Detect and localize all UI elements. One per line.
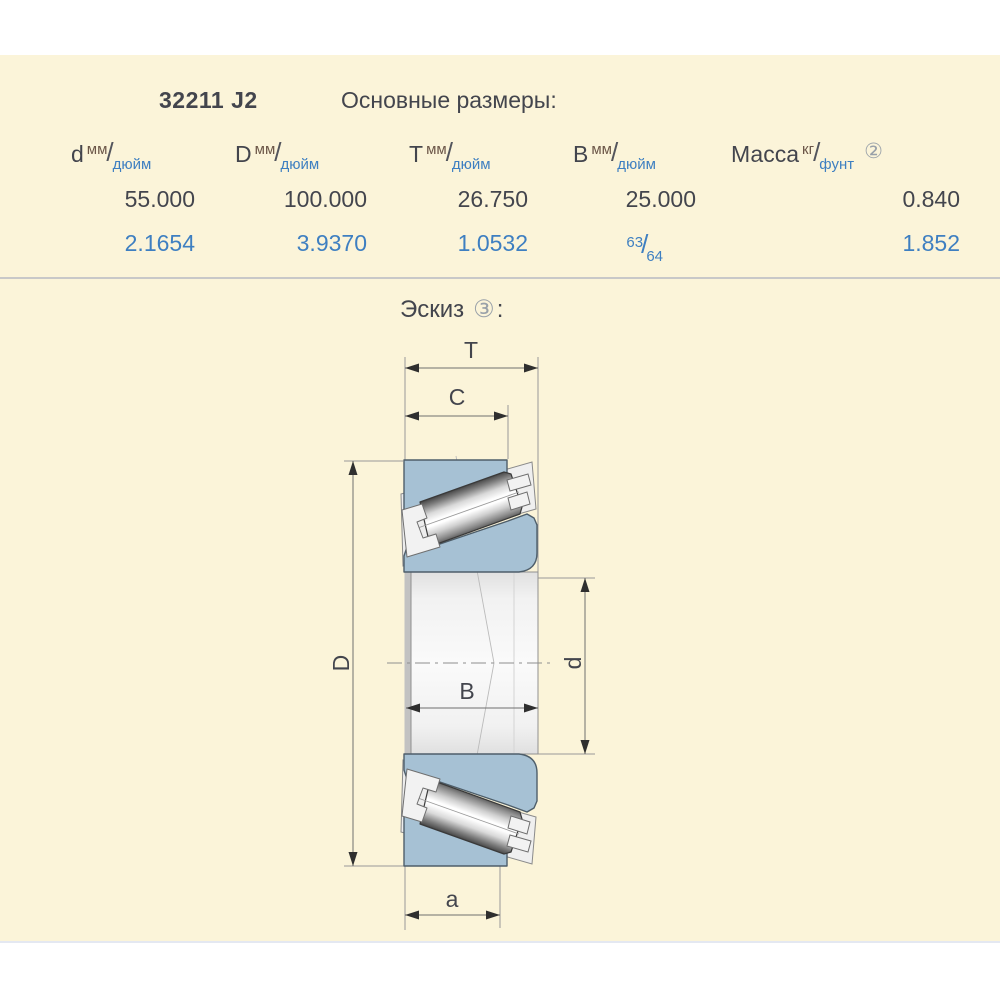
dim-label-D: D [328, 655, 354, 672]
bearing-lower-half [401, 754, 537, 866]
dim-label-C: C [449, 384, 466, 410]
dim-label-T: T [464, 337, 478, 363]
dim-label-a: a [446, 886, 459, 912]
bearing-upper-half [401, 460, 537, 572]
dimension-T [405, 364, 538, 373]
dimension-C [405, 412, 508, 421]
dim-label-B: B [459, 678, 474, 704]
dim-label-d: d [560, 657, 586, 670]
bearing-cross-section-sketch: T C D d B a [0, 0, 1000, 1000]
